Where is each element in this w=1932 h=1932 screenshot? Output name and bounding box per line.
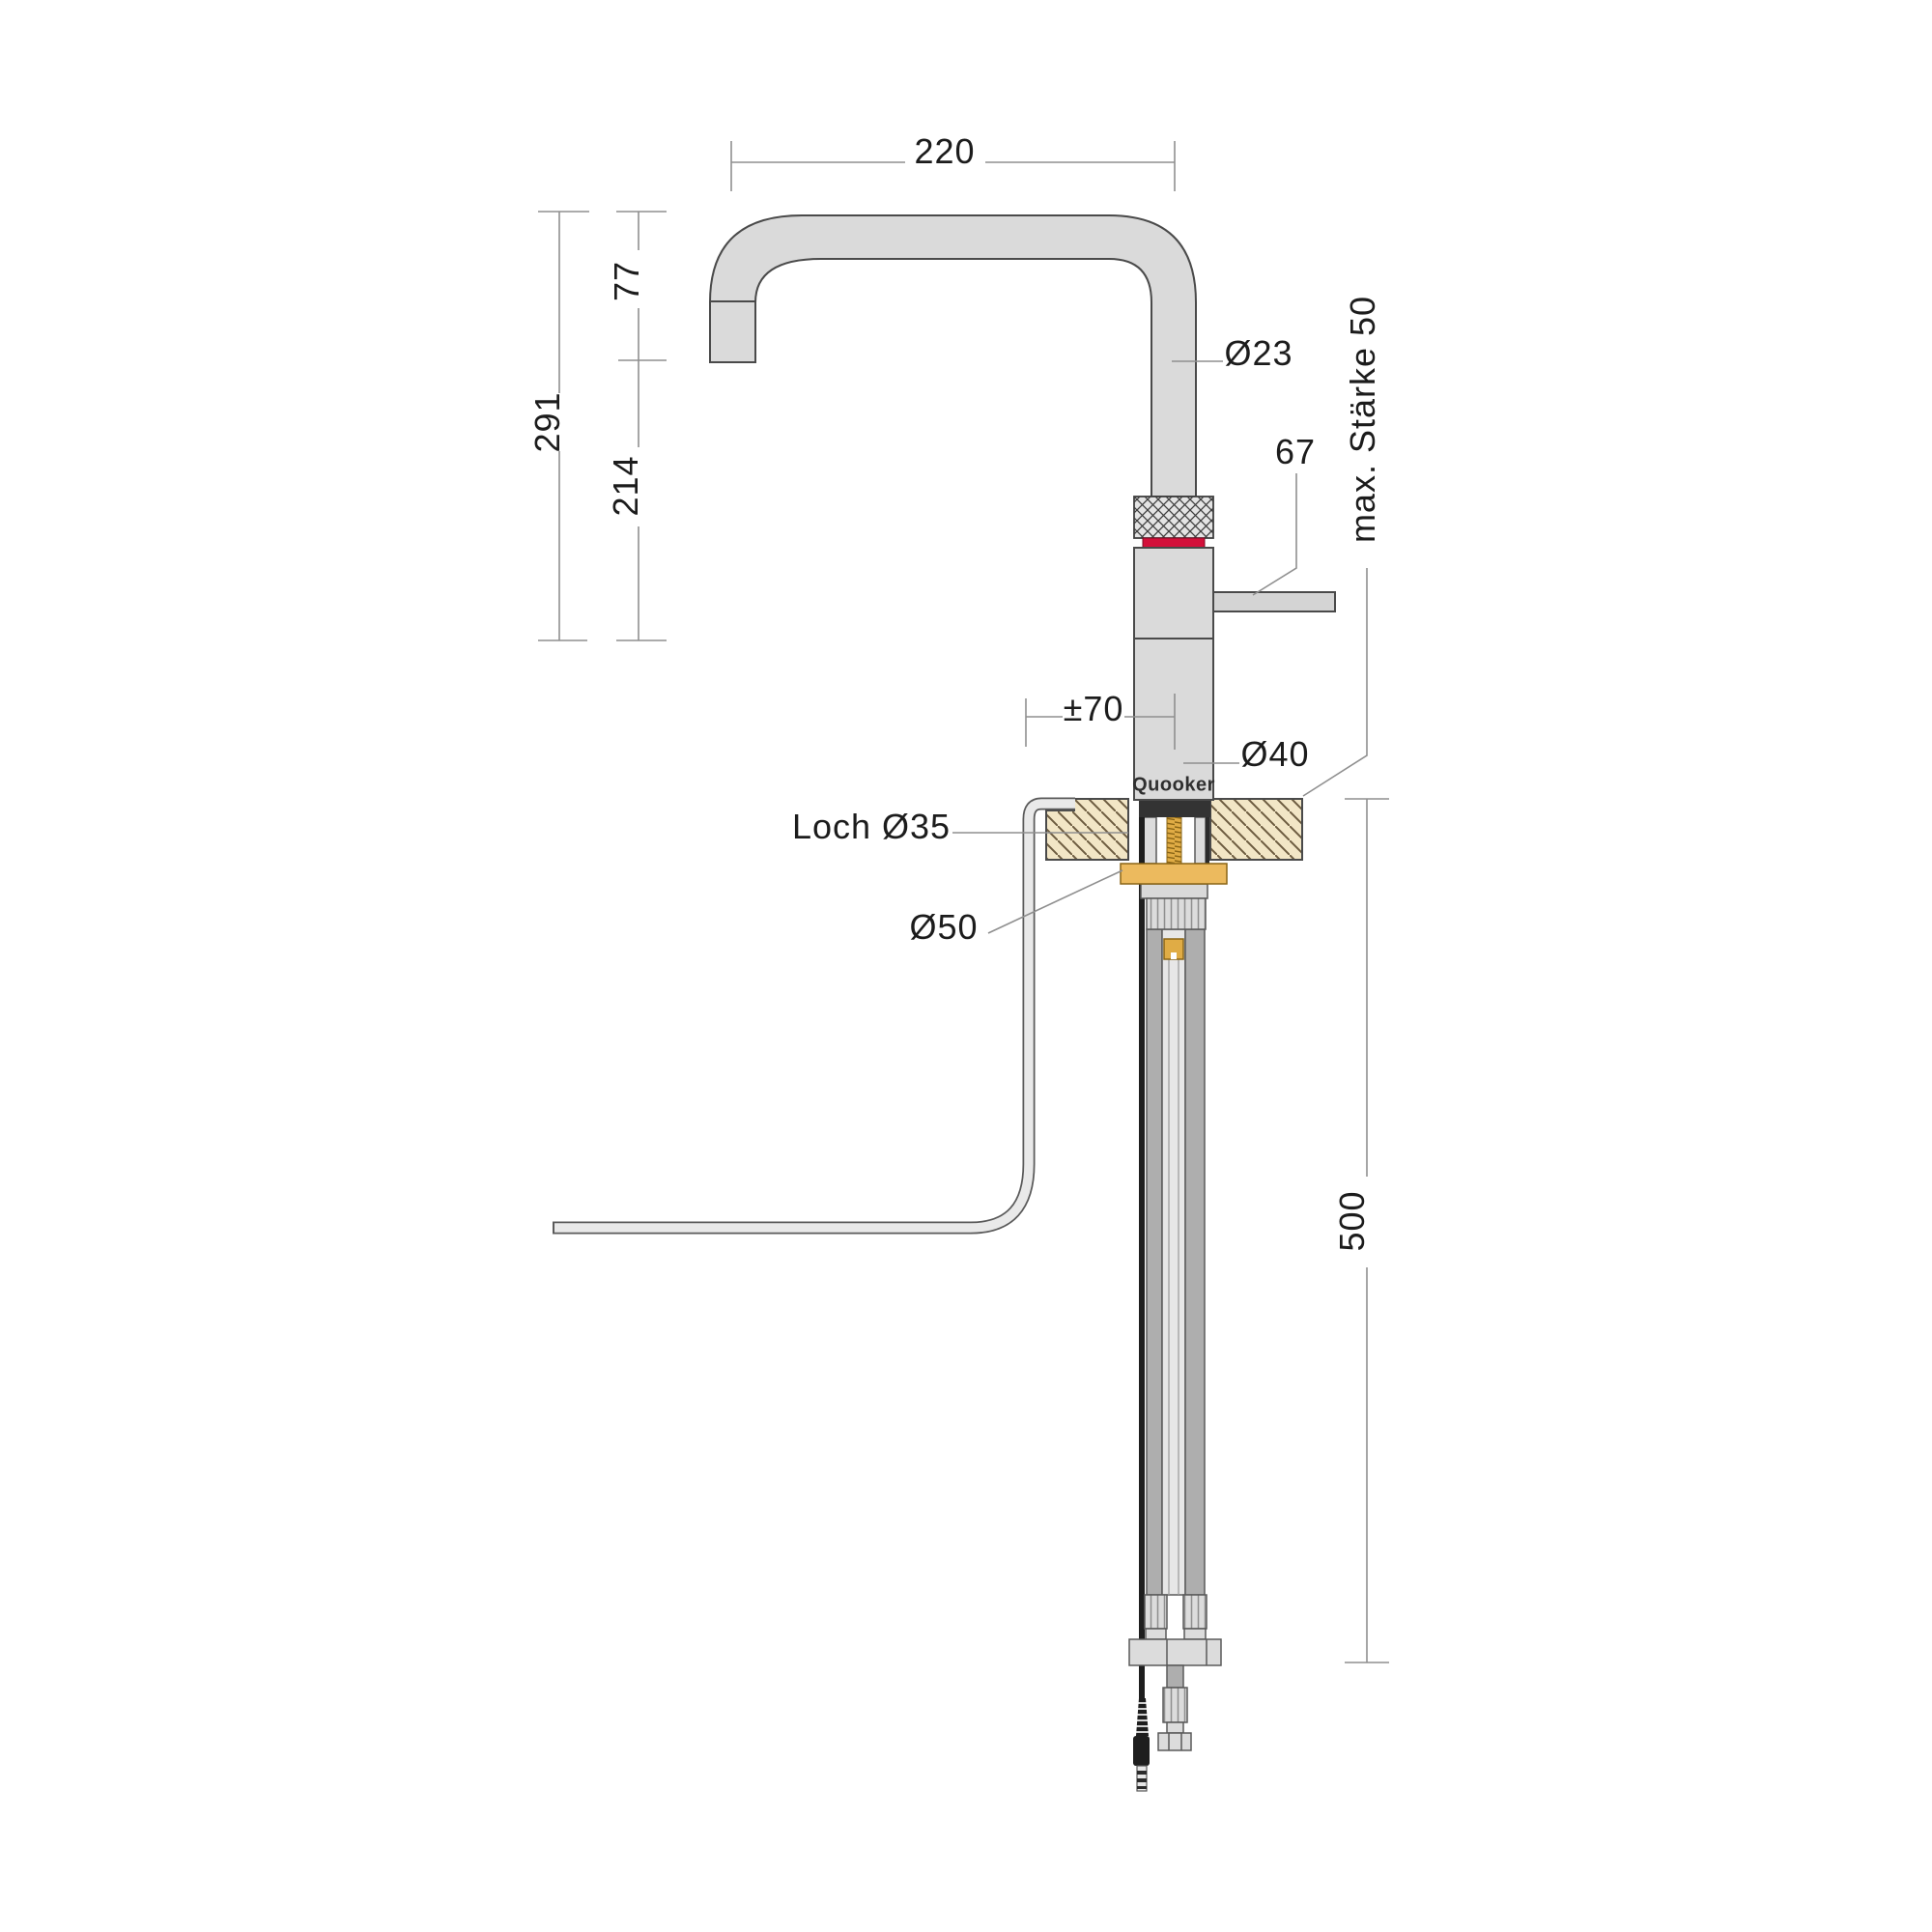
brass-tensioner-notch bbox=[1171, 952, 1177, 959]
dim-label-body-height: 214 bbox=[609, 455, 643, 516]
label-hole-diameter: Loch Ø35 bbox=[792, 810, 951, 844]
shank-wall-right bbox=[1195, 817, 1206, 864]
worktop-right-block bbox=[1210, 799, 1302, 860]
shank-wall-left bbox=[1144, 817, 1156, 864]
red-ring bbox=[1143, 538, 1205, 548]
plug-strain-relief bbox=[1136, 1698, 1149, 1736]
label-handle-offset: ±70 bbox=[1064, 692, 1124, 726]
valve-hex-end bbox=[1158, 1733, 1191, 1750]
dim-label-spout-reach: 220 bbox=[914, 134, 975, 169]
dim-label-spout-drop: 77 bbox=[610, 261, 644, 301]
technical-drawing-svg bbox=[0, 0, 1932, 1932]
label-flange-diameter: Ø50 bbox=[909, 910, 978, 945]
label-worktop-thickness: max. Stärke 50 bbox=[1346, 296, 1380, 543]
tube-right bbox=[1185, 929, 1205, 1595]
handle bbox=[1213, 592, 1335, 611]
leader-d50 bbox=[988, 870, 1122, 933]
tube-center bbox=[1162, 929, 1185, 1595]
hole-edge-right bbox=[1206, 817, 1209, 864]
cable-plug bbox=[1133, 1698, 1150, 1791]
drawing-canvas: 220 77 291 214 Ø23 67 max. Stärke 50 ±70… bbox=[0, 0, 1932, 1932]
leader-67 bbox=[1253, 473, 1296, 595]
power-cable bbox=[1139, 817, 1145, 1698]
connector-left-collar bbox=[1146, 1629, 1166, 1639]
valve-body-upper bbox=[1134, 548, 1213, 639]
mounting-flange bbox=[1121, 864, 1227, 884]
label-spout-diameter: Ø23 bbox=[1224, 336, 1293, 371]
spline-nut bbox=[1147, 898, 1206, 929]
spacer-block bbox=[1141, 884, 1207, 898]
brand-logo: Quooker bbox=[1132, 775, 1215, 797]
label-handle-length: 67 bbox=[1275, 435, 1316, 469]
connector-right-collar bbox=[1184, 1629, 1206, 1639]
connector-left bbox=[1145, 1595, 1167, 1629]
supply-hose bbox=[554, 804, 1075, 1235]
connector-right bbox=[1183, 1595, 1207, 1629]
valve-stem bbox=[1167, 1665, 1183, 1688]
spout bbox=[710, 215, 1196, 497]
plug-body bbox=[1133, 1736, 1150, 1766]
label-body-diameter: Ø40 bbox=[1240, 737, 1309, 772]
water-tubes bbox=[1147, 929, 1205, 1595]
faucet bbox=[710, 215, 1335, 817]
tube-left bbox=[1147, 929, 1162, 1595]
dim-label-installation-depth: 500 bbox=[1335, 1190, 1370, 1251]
knurled-ring bbox=[1134, 497, 1213, 538]
valve-neck bbox=[1167, 1722, 1183, 1733]
dim-label-overall-height: 291 bbox=[530, 391, 565, 452]
mounting-hardware bbox=[1121, 864, 1227, 959]
base-gasket bbox=[1139, 800, 1210, 817]
plug-jack-tip bbox=[1137, 1766, 1147, 1791]
valve-spline bbox=[1163, 1688, 1187, 1722]
